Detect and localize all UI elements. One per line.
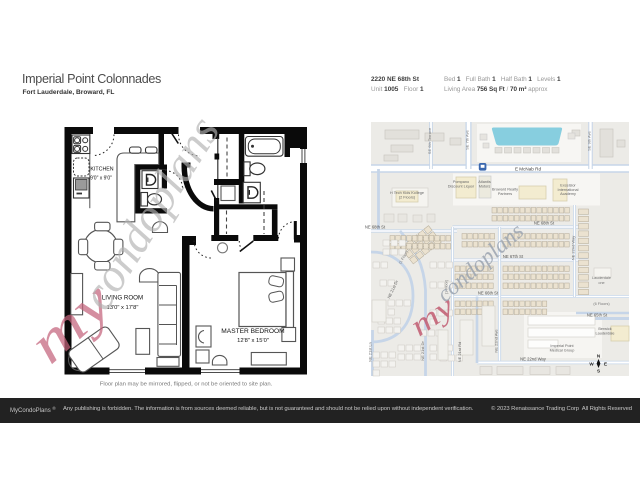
- svg-text:Floor plan may be mirrored, fl: Floor plan may be mirrored, flipped, or …: [100, 382, 273, 388]
- svg-text:Discount Liquor: Discount Liquor: [448, 184, 475, 188]
- svg-text:one: one: [598, 281, 604, 285]
- svg-text:SE 7th Ave: SE 7th Ave: [465, 129, 470, 149]
- svg-text:Medical Group: Medical Group: [550, 348, 575, 352]
- svg-text:KITCHEN: KITCHEN: [90, 167, 113, 173]
- svg-text:SE 6th Terrace: SE 6th Terrace: [427, 127, 432, 154]
- svg-text:NE 66th St: NE 66th St: [478, 291, 499, 296]
- svg-text:E McNab Rd: E McNab Rd: [515, 166, 541, 171]
- svg-text:NE 21st Ln: NE 21st Ln: [368, 342, 373, 362]
- svg-text:Lauderdale: Lauderdale: [595, 331, 614, 335]
- svg-text:9'0" x 9'0": 9'0" x 9'0": [90, 176, 112, 182]
- svg-text:MASTER BEDROOM: MASTER BEDROOM: [221, 328, 284, 335]
- svg-text:Partners: Partners: [498, 192, 512, 196]
- svg-text:(2 Floors): (2 Floors): [399, 195, 416, 199]
- svg-text:NE 68th St: NE 68th St: [365, 224, 386, 229]
- svg-text:NE 22nd Way: NE 22nd Way: [520, 357, 547, 362]
- svg-text:Motors: Motors: [479, 184, 491, 188]
- svg-text:E: E: [604, 362, 607, 367]
- svg-text:12'8" x 15'0": 12'8" x 15'0": [237, 338, 269, 344]
- svg-text:NE 65th St: NE 65th St: [587, 313, 608, 318]
- svg-text:NE 68th St: NE 68th St: [534, 221, 555, 226]
- svg-text:Lauderdale: Lauderdale: [592, 276, 611, 280]
- svg-text:(6 Floors): (6 Floors): [593, 302, 610, 306]
- svg-text:W: W: [589, 362, 594, 367]
- svg-text:Academy: Academy: [560, 192, 576, 196]
- svg-text:S: S: [597, 369, 600, 374]
- svg-text:SE 9th Ave: SE 9th Ave: [587, 130, 592, 150]
- svg-text:NE 21st Dr: NE 21st Dr: [420, 341, 425, 361]
- svg-text:NE 22nd Way: NE 22nd Way: [571, 236, 576, 261]
- svg-text:condoplans: condoplans: [71, 107, 230, 318]
- svg-text:NE 21st Rd: NE 21st Rd: [457, 342, 462, 362]
- svg-text:NE 22nd Ave: NE 22nd Ave: [494, 329, 499, 353]
